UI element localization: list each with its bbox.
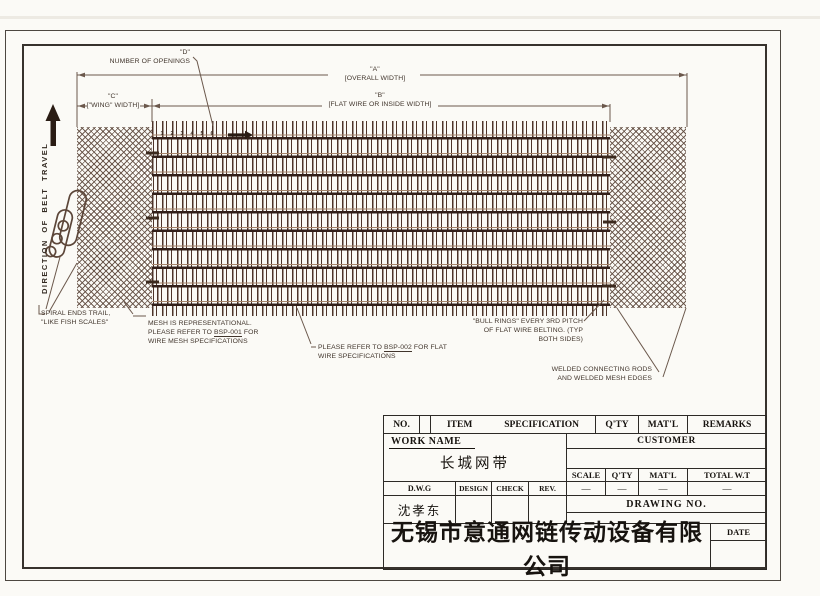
direction-of-belt-travel-label: DIRECTION OF BELT TRAVEL [40, 144, 56, 294]
matl-label: MAT'L [638, 468, 688, 482]
mesh-connecting-rods [152, 121, 610, 316]
dwg-label: D.W.G [383, 481, 456, 496]
note-line: WIRE MESH SPECIFICATIONS [148, 338, 268, 347]
dim-d-text: NUMBER OF OPENINGS [95, 58, 190, 67]
scale-value: — [566, 481, 606, 496]
date-cell: DATE [710, 523, 767, 570]
note-welded-rods: WELDED CONNECTING RODS AND WELDED MESH E… [531, 366, 652, 384]
dim-label-wing-width: "C" ["WING" WIDTH] [77, 93, 149, 111]
dim-c-text: ["WING" WIDTH] [77, 102, 149, 111]
note-line: MESH IS REPRESENTATIONAL. [148, 320, 268, 329]
title-block: NO. ITEM SPECIFICATION Q'TY MAT'L REMARK… [383, 415, 767, 570]
header-item-specification: ITEM SPECIFICATION [430, 415, 596, 434]
opening-number: 3 [177, 130, 187, 138]
note-line: WELDED CONNECTING RODS [531, 366, 652, 375]
note-line: "BULL RINGS" EVERY 3RD PITCH [462, 318, 583, 327]
check-label: CHECK [491, 481, 529, 496]
dim-c-id: "C" [77, 93, 149, 102]
note-line: BOTH SIDES) [462, 336, 583, 345]
qty-value: — [605, 481, 639, 496]
flat-wire-mesh [152, 121, 610, 316]
scan-streak [0, 16, 820, 19]
note-spiral-ends: SPIRAL ENDS TRAIL, "LIKE FISH SCALES" [41, 310, 136, 328]
rev-label: REV. [528, 481, 567, 496]
note-line: PLEASE REFER TO BSP-002 FOR FLAT [318, 344, 463, 353]
drawing-no-label: DRAWING NO. [566, 495, 767, 513]
work-name-label: WORK NAME [389, 436, 475, 449]
header-specification: SPECIFICATION [504, 420, 579, 430]
dim-label-overall-width: "A" [OVERALL WIDTH] [330, 66, 420, 84]
opening-numbers: 1 2 3 4 5 6 [157, 130, 217, 138]
total-wt-value: — [687, 481, 767, 496]
dim-a-id: "A" [330, 66, 420, 75]
note-line: AND WELDED MESH EDGES [531, 375, 652, 384]
customer-value-cell [566, 448, 767, 469]
dim-label-number-of-openings: "D" NUMBER OF OPENINGS [95, 49, 190, 67]
total-wt-label: TOTAL W.T [687, 468, 767, 482]
work-name-cell: WORK NAME 长城网带 [383, 433, 567, 482]
note-line: SPIRAL ENDS TRAIL, [41, 310, 136, 319]
note-line: WIRE SPECIFICATIONS [318, 353, 463, 362]
note-bull-rings: "BULL RINGS" EVERY 3RD PITCH OF FLAT WIR… [462, 318, 583, 345]
dim-b-text: [FLAT WIRE OR INSIDE WIDTH] [315, 101, 445, 110]
customer-label: CUSTOMER [566, 433, 767, 449]
note-flat-wire-spec: PLEASE REFER TO BSP-002 FOR FLAT WIRE SP… [318, 344, 463, 362]
work-name-value: 长城网带 [384, 452, 566, 473]
dim-a-text: [OVERALL WIDTH] [330, 75, 420, 84]
note-mesh-representational: MESH IS REPRESENTATIONAL. PLEASE REFER T… [148, 320, 268, 347]
note-line: PLEASE REFER TO BSP-001 FOR [148, 329, 268, 338]
opening-number: 2 [167, 130, 177, 138]
opening-number: 6 [207, 130, 217, 138]
header-remarks: REMARKS [687, 415, 767, 434]
opening-number: 1 [157, 130, 167, 138]
note-line: "LIKE FISH SCALES" [41, 319, 136, 328]
header-no: NO. [383, 415, 420, 434]
note-line: OF FLAT WIRE BELTING. (TYP [462, 327, 583, 336]
bsp-001-ref: BSP-001 [214, 329, 242, 337]
qty-label: Q'TY [605, 468, 639, 482]
header-qty: Q'TY [595, 415, 639, 434]
engineering-drawing-sheet: 1 2 3 4 5 6 [0, 0, 820, 596]
company-name: 无锡市意通网链传动设备有限公司 [383, 523, 711, 570]
bsp-002-ref: BSP-002 [384, 344, 412, 352]
header-matl: MAT'L [638, 415, 688, 434]
dim-d-id: "D" [95, 49, 190, 58]
left-wing-crosshatch [77, 127, 152, 308]
right-wing-crosshatch [610, 127, 686, 308]
date-label: DATE [711, 524, 766, 541]
design-label: DESIGN [455, 481, 492, 496]
dim-b-id: "B" [315, 92, 445, 101]
scale-label: SCALE [566, 468, 606, 482]
header-item: ITEM [447, 420, 472, 430]
opening-number: 5 [197, 130, 207, 138]
opening-number: 4 [187, 130, 197, 138]
dim-label-inside-width: "B" [FLAT WIRE OR INSIDE WIDTH] [315, 92, 445, 110]
matl-value: — [638, 481, 688, 496]
